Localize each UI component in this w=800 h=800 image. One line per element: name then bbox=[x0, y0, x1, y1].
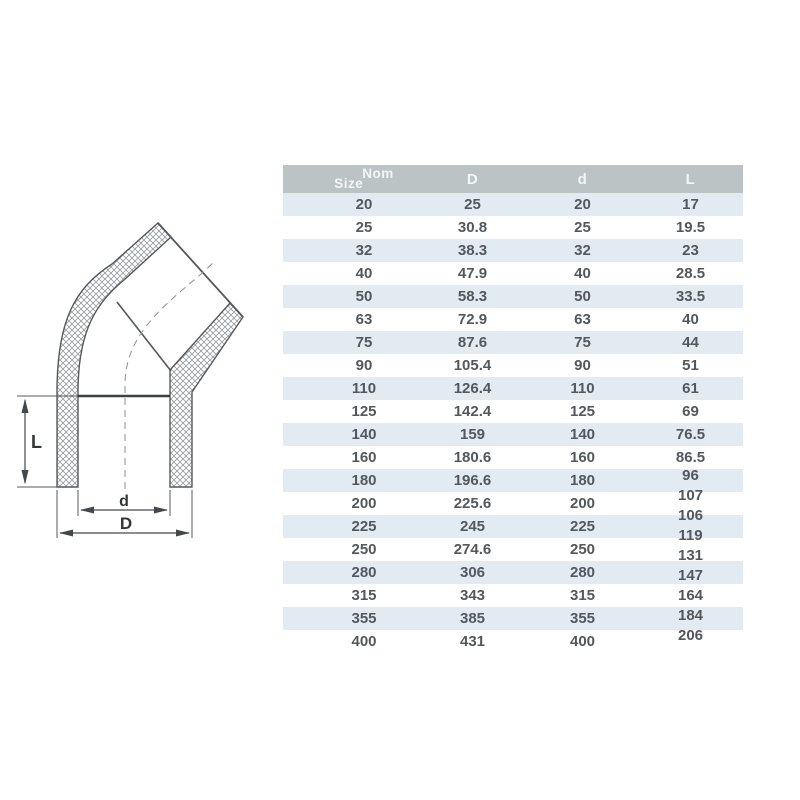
cell-d: 125 bbox=[527, 403, 638, 420]
cell-d: 40 bbox=[527, 265, 638, 282]
cell-d: 38.3 bbox=[418, 242, 527, 259]
cell-l: 86.5 bbox=[638, 449, 743, 466]
cell-size: 50 bbox=[283, 288, 418, 305]
cell-l: 33.5 bbox=[638, 288, 743, 305]
cell-size: 25 bbox=[283, 219, 418, 236]
cell-d: 385 bbox=[418, 610, 527, 627]
cell-d: 400 bbox=[527, 633, 638, 650]
l-drift-value: 96 bbox=[638, 466, 743, 486]
spec-table: SizeNom D d L 202520172530.82519.53238.3… bbox=[283, 165, 743, 653]
table-row: 2530.82519.5 bbox=[283, 216, 743, 239]
cell-size: 250 bbox=[283, 541, 418, 558]
cell-d: 280 bbox=[527, 564, 638, 581]
l-column-drift: 96107106119131147164184206 bbox=[638, 466, 743, 646]
table-header-row: SizeNom D d L bbox=[283, 165, 743, 193]
table-row: 7587.67544 bbox=[283, 331, 743, 354]
cell-l: 40 bbox=[638, 311, 743, 328]
cell-d: 140 bbox=[527, 426, 638, 443]
cell-l: 28.5 bbox=[638, 265, 743, 282]
l-drift-value: 106 bbox=[638, 506, 743, 526]
cell-size: 400 bbox=[283, 633, 418, 650]
cell-d: 32 bbox=[527, 242, 638, 259]
dimension-label-l: L bbox=[31, 432, 42, 452]
cell-d: 126.4 bbox=[418, 380, 527, 397]
cell-l: 17 bbox=[638, 196, 743, 213]
table-row: 20252017 bbox=[283, 193, 743, 216]
elbow-inner-wall bbox=[170, 303, 243, 487]
cell-l: 61 bbox=[638, 380, 743, 397]
cell-l: 51 bbox=[638, 357, 743, 374]
l-drift-value: 147 bbox=[638, 566, 743, 586]
cell-d: 225 bbox=[527, 518, 638, 535]
cell-d: 50 bbox=[527, 288, 638, 305]
table-row: 110126.411061 bbox=[283, 377, 743, 400]
cell-d: 274.6 bbox=[418, 541, 527, 558]
table-row: 5058.35033.5 bbox=[283, 285, 743, 308]
l-drift-value: 107 bbox=[638, 486, 743, 506]
table-row: 6372.96340 bbox=[283, 308, 743, 331]
cell-d: 160 bbox=[527, 449, 638, 466]
l-drift-value: 206 bbox=[638, 626, 743, 646]
l-drift-value: 184 bbox=[638, 606, 743, 626]
cell-d: 180 bbox=[527, 472, 638, 489]
elbow-45-diagram: L d D bbox=[10, 195, 280, 555]
cell-d: 90 bbox=[527, 357, 638, 374]
cell-d: 75 bbox=[527, 334, 638, 351]
header-label-size: Size bbox=[334, 176, 363, 191]
cell-l: 44 bbox=[638, 334, 743, 351]
cell-l: 76.5 bbox=[638, 426, 743, 443]
cell-d: 315 bbox=[527, 587, 638, 604]
elbow-outer-wall bbox=[57, 223, 171, 487]
cell-size: 180 bbox=[283, 472, 418, 489]
cell-d: 72.9 bbox=[418, 311, 527, 328]
dimension-label-d: d bbox=[119, 493, 129, 510]
cell-size: 20 bbox=[283, 196, 418, 213]
cell-d: 355 bbox=[527, 610, 638, 627]
header-cell-outer-diameter: D bbox=[418, 171, 527, 188]
table-row: 125142.412569 bbox=[283, 400, 743, 423]
cell-size: 140 bbox=[283, 426, 418, 443]
socket-shoulder-line bbox=[117, 302, 171, 371]
dimension-label-big-d: D bbox=[120, 514, 132, 533]
table-row: 90105.49051 bbox=[283, 354, 743, 377]
cell-size: 75 bbox=[283, 334, 418, 351]
header-cell-length: L bbox=[638, 171, 743, 188]
cell-size: 90 bbox=[283, 357, 418, 374]
cell-d: 30.8 bbox=[418, 219, 527, 236]
cell-d: 250 bbox=[527, 541, 638, 558]
l-drift-value: 131 bbox=[638, 546, 743, 566]
cell-d: 159 bbox=[418, 426, 527, 443]
cell-d: 200 bbox=[527, 495, 638, 512]
cell-d: 343 bbox=[418, 587, 527, 604]
cell-d: 20 bbox=[527, 196, 638, 213]
cell-d: 180.6 bbox=[418, 449, 527, 466]
table-row: 14015914076.5 bbox=[283, 423, 743, 446]
cell-d: 431 bbox=[418, 633, 527, 650]
cell-size: 32 bbox=[283, 242, 418, 259]
table-row: 4047.94028.5 bbox=[283, 262, 743, 285]
cell-d: 47.9 bbox=[418, 265, 527, 282]
cell-size: 110 bbox=[283, 380, 418, 397]
cell-d: 225.6 bbox=[418, 495, 527, 512]
l-drift-value: 164 bbox=[638, 586, 743, 606]
cell-d: 58.3 bbox=[418, 288, 527, 305]
cell-size: 225 bbox=[283, 518, 418, 535]
cell-d: 110 bbox=[527, 380, 638, 397]
page: L d D SizeNom D d L 202520172530.82519.5… bbox=[0, 0, 800, 800]
cell-size: 160 bbox=[283, 449, 418, 466]
cell-size: 125 bbox=[283, 403, 418, 420]
cell-d: 245 bbox=[418, 518, 527, 535]
cell-d: 25 bbox=[418, 196, 527, 213]
socket-mouth-face bbox=[158, 223, 243, 317]
cell-l: 69 bbox=[638, 403, 743, 420]
header-cell-size-nom: SizeNom bbox=[283, 172, 418, 187]
cell-l: 19.5 bbox=[638, 219, 743, 236]
cell-size: 355 bbox=[283, 610, 418, 627]
l-drift-value: 119 bbox=[638, 526, 743, 546]
cell-size: 315 bbox=[283, 587, 418, 604]
cell-size: 63 bbox=[283, 311, 418, 328]
cell-d: 87.6 bbox=[418, 334, 527, 351]
cell-size: 40 bbox=[283, 265, 418, 282]
cell-d: 306 bbox=[418, 564, 527, 581]
elbow-45-drawing: L d D bbox=[10, 195, 280, 555]
table-row: 3238.33223 bbox=[283, 239, 743, 262]
header-label-nom: Nom bbox=[362, 166, 394, 181]
header-cell-inner-diameter: d bbox=[527, 171, 638, 188]
cell-d: 25 bbox=[527, 219, 638, 236]
cell-l: 23 bbox=[638, 242, 743, 259]
cell-d: 142.4 bbox=[418, 403, 527, 420]
cell-d: 196.6 bbox=[418, 472, 527, 489]
cell-size: 280 bbox=[283, 564, 418, 581]
cell-d: 105.4 bbox=[418, 357, 527, 374]
cell-size: 200 bbox=[283, 495, 418, 512]
cell-d: 63 bbox=[527, 311, 638, 328]
